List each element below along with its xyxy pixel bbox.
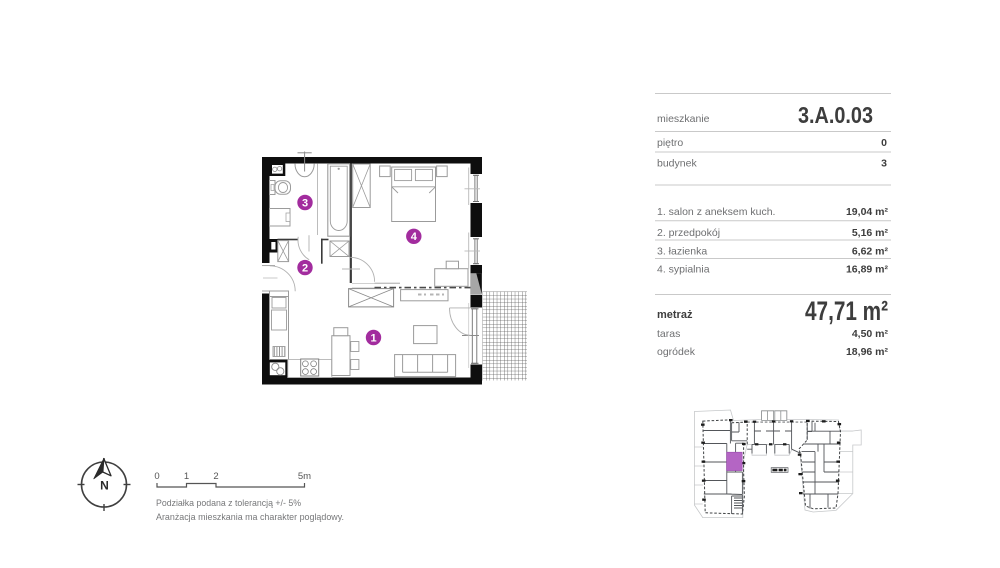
svg-text:2. przedpokój: 2. przedpokój (657, 227, 720, 239)
svg-text:1: 1 (184, 471, 189, 482)
svg-text:3: 3 (302, 197, 308, 209)
svg-text:4,50 m²: 4,50 m² (852, 328, 889, 340)
svg-text:5m: 5m (298, 471, 311, 482)
svg-text:47,71 m²: 47,71 m² (805, 296, 888, 326)
svg-text:16,89 m²: 16,89 m² (846, 264, 889, 276)
svg-text:3. łazienka: 3. łazienka (657, 246, 707, 258)
svg-text:mieszkanie: mieszkanie (657, 113, 710, 125)
svg-text:3.A.0.03: 3.A.0.03 (798, 102, 873, 128)
svg-text:taras: taras (657, 328, 680, 340)
svg-text:N: N (100, 479, 109, 493)
svg-text:ogródek: ogródek (657, 346, 696, 358)
svg-text:1. salon z aneksem kuch.: 1. salon z aneksem kuch. (657, 206, 775, 218)
svg-text:4: 4 (411, 231, 418, 243)
svg-text:0: 0 (154, 471, 159, 482)
svg-text:2: 2 (213, 471, 218, 482)
svg-text:piętro: piętro (657, 137, 683, 149)
svg-text:3: 3 (881, 158, 887, 170)
svg-text:0: 0 (881, 137, 887, 149)
svg-text:2: 2 (302, 262, 308, 274)
svg-text:budynek: budynek (657, 158, 697, 170)
svg-text:metraż: metraż (657, 309, 693, 321)
svg-text:5,16 m²: 5,16 m² (852, 227, 889, 239)
svg-text:18,96 m²: 18,96 m² (846, 346, 889, 358)
svg-text:19,04 m²: 19,04 m² (846, 206, 889, 218)
svg-text:Podziałka podana z tolerancją: Podziałka podana z tolerancją +/- 5% (156, 498, 301, 509)
svg-text:Aranżacja mieszkania ma charak: Aranżacja mieszkania ma charakter pogląd… (156, 512, 344, 523)
svg-text:1: 1 (370, 332, 376, 344)
svg-text:6,62 m²: 6,62 m² (852, 246, 889, 258)
svg-text:4. sypialnia: 4. sypialnia (657, 264, 710, 276)
